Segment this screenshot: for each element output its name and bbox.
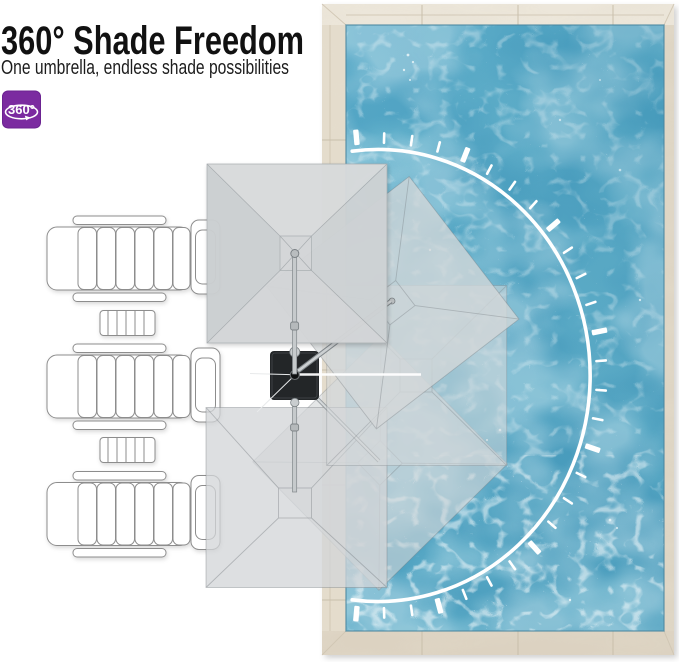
- svg-text:360°: 360°: [8, 102, 35, 117]
- svg-text:One umbrella, endless shade po: One umbrella, endless shade possibilitie…: [1, 57, 289, 79]
